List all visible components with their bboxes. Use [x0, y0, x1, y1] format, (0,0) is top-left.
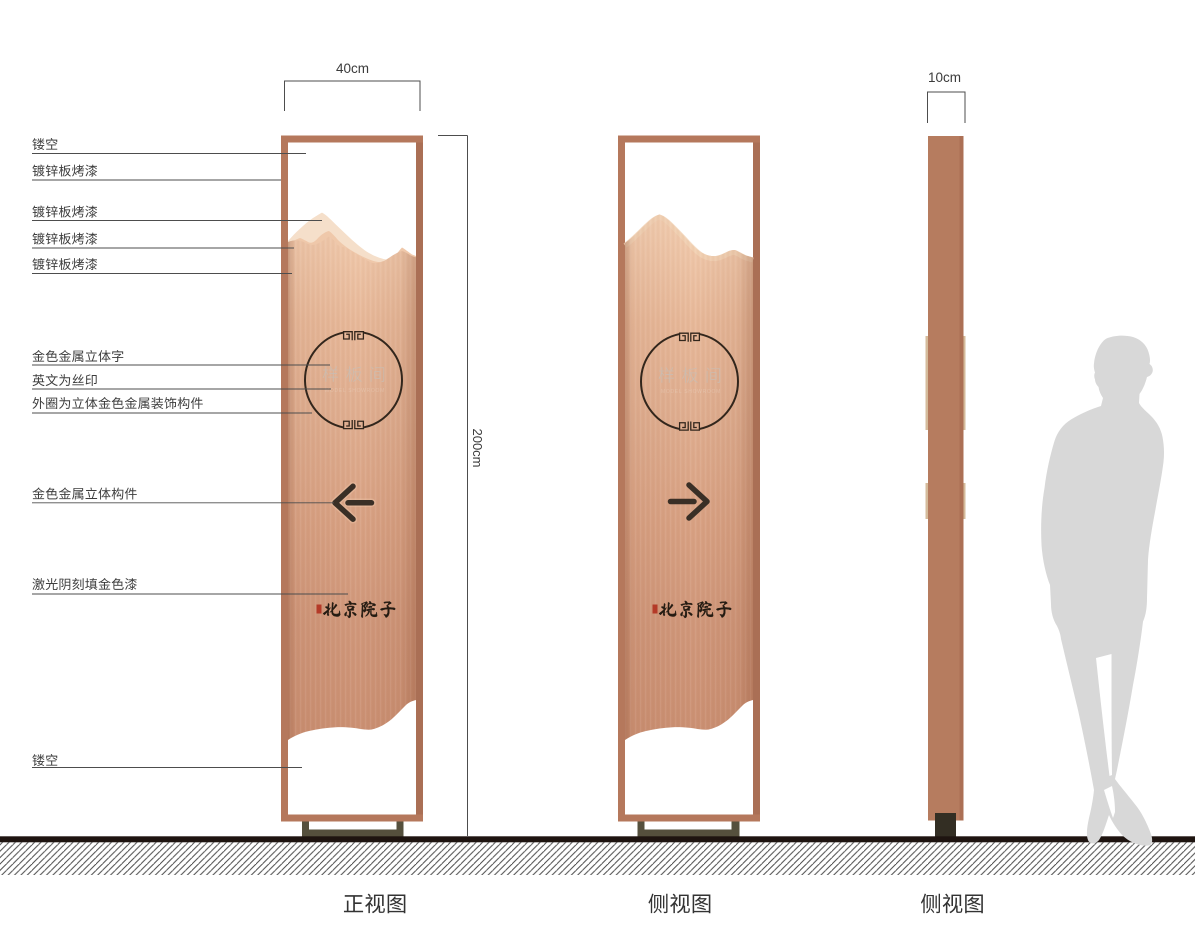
svg-text:40cm: 40cm — [336, 61, 369, 76]
svg-text:200cm: 200cm — [470, 428, 485, 467]
svg-text:MODEL SHOWROOM: MODEL SHOWROOM — [661, 389, 721, 395]
svg-text:10cm: 10cm — [928, 70, 961, 85]
svg-text:MODEL SHOWROOM: MODEL SHOWROOM — [325, 388, 385, 394]
